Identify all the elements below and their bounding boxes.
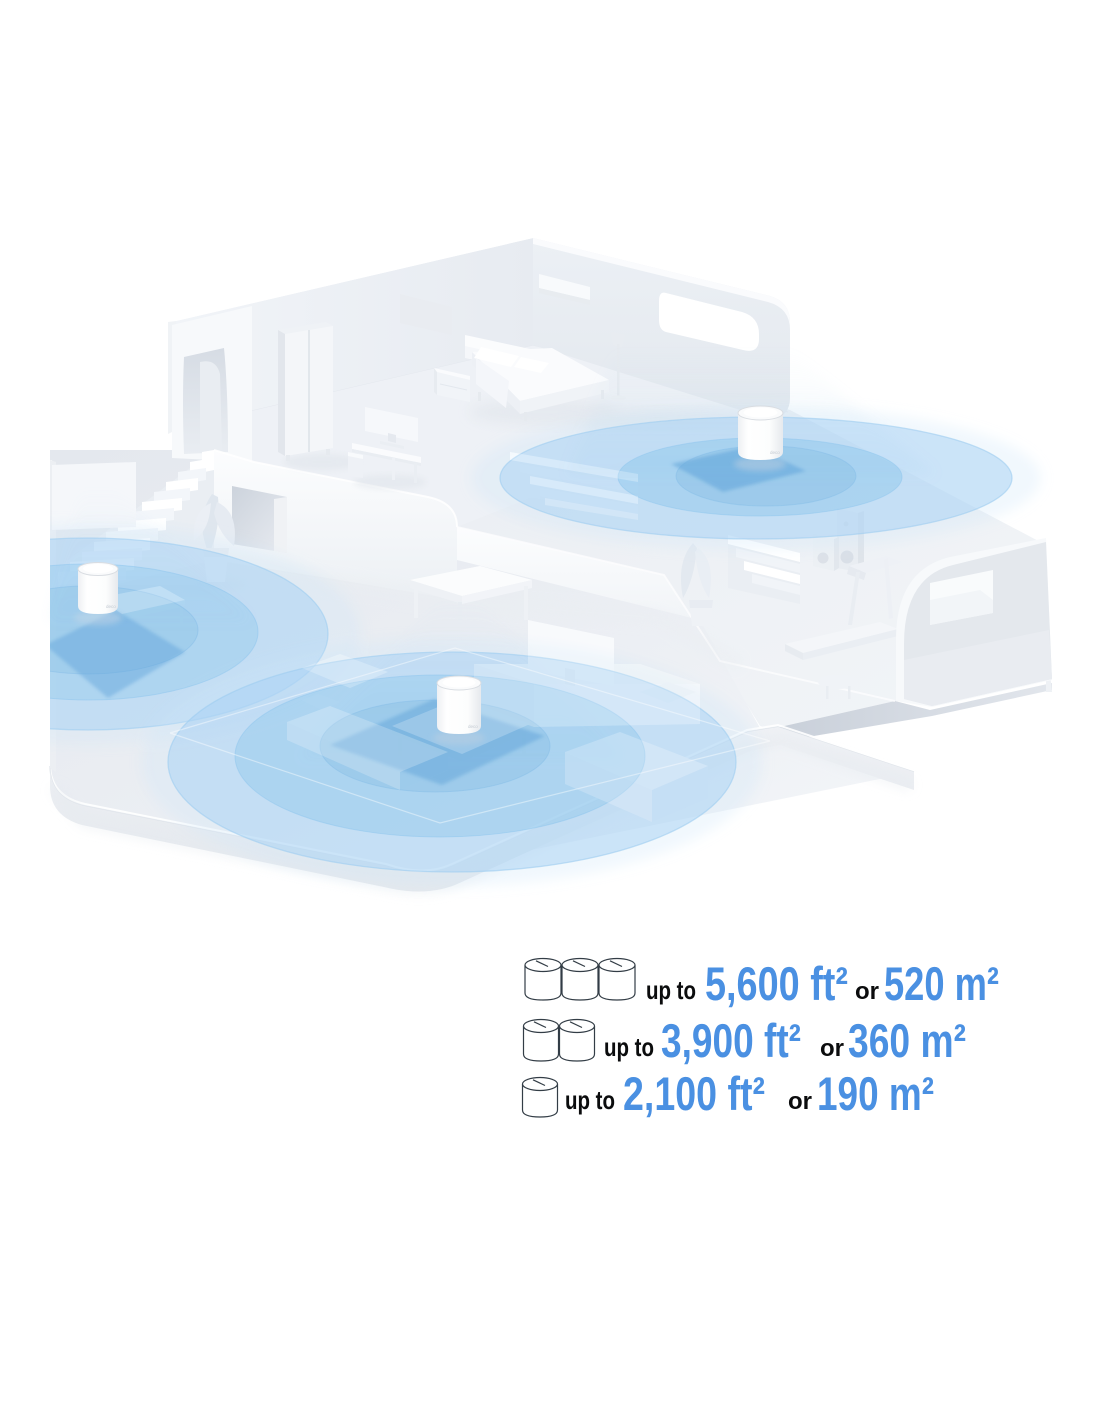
svg-text:deco: deco [770, 450, 780, 455]
svg-text:520 m²: 520 m² [884, 957, 999, 1010]
svg-text:deco: deco [468, 724, 478, 729]
svg-text:up to: up to [604, 1032, 654, 1062]
svg-text:up to: up to [565, 1085, 615, 1115]
svg-text:3,900 ft²: 3,900 ft² [661, 1014, 801, 1067]
svg-text:2,100 ft²: 2,100 ft² [623, 1067, 765, 1120]
svg-text:or: or [855, 978, 879, 1005]
svg-text:5,600 ft²: 5,600 ft² [705, 957, 848, 1010]
svg-text:deco: deco [106, 604, 116, 609]
svg-text:up to: up to [646, 975, 696, 1005]
svg-text:360 m²: 360 m² [848, 1014, 966, 1067]
svg-text:or: or [788, 1088, 812, 1115]
svg-text:or: or [820, 1035, 844, 1062]
svg-text:190 m²: 190 m² [817, 1067, 934, 1120]
